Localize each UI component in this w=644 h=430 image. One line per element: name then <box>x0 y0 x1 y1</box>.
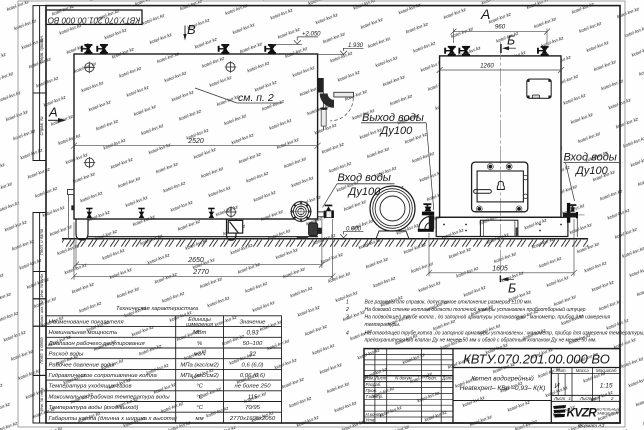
svg-text:Формат А3: Формат А3 <box>578 423 605 429</box>
svg-text:В: В <box>187 22 196 37</box>
svg-text:Значение: Значение <box>240 320 267 326</box>
svg-text:мм: мм <box>196 416 204 422</box>
svg-text:KVZR: KVZR <box>567 406 598 420</box>
svg-text:Масштаб: Масштаб <box>596 368 617 373</box>
svg-text:1.930: 1.930 <box>348 43 364 49</box>
svg-text:Инв. № подл.: Инв. № подл. <box>39 387 44 412</box>
svg-text:Подп. и дата: Подп. и дата <box>39 228 44 255</box>
svg-text:Подп.: Подп. <box>425 376 437 381</box>
svg-text:N докум.: N докум. <box>395 376 413 381</box>
svg-text:МВт: МВт <box>193 330 207 336</box>
svg-text:Габариты котла (длинна х ширин: Габариты котла (длинна х ширина х высота… <box>49 416 177 422</box>
svg-text:115: 115 <box>248 394 258 400</box>
svg-text:2770х1605х2050: 2770х1605х2050 <box>229 416 276 422</box>
svg-text:температуры.: температуры. <box>365 322 401 328</box>
svg-text:Вход воды: Вход воды <box>564 151 617 163</box>
svg-text:Пров.: Пров. <box>366 388 378 393</box>
svg-text:Гидравлическое сопротивление к: Гидравлическое сопротивление котла <box>49 373 158 379</box>
svg-text:Изм.: Изм. <box>365 376 374 381</box>
svg-text:0,93: 0,93 <box>246 329 259 336</box>
svg-text:КВТУ.070.201.00.000 ВО: КВТУ.070.201.00.000 ВО <box>463 351 610 366</box>
svg-text:Б: Б <box>507 34 515 48</box>
svg-text:Инв. № дубл.: Инв. № дубл. <box>39 273 44 298</box>
svg-text:Лит.: Лит. <box>555 368 566 373</box>
svg-text:0,06 (0,6): 0,06 (0,6) <box>240 373 265 379</box>
svg-text:3: 3 <box>346 315 349 321</box>
svg-text:МПа (кгс/см2): МПа (кгс/см2) <box>180 362 219 368</box>
svg-text:°С: °С <box>196 405 203 411</box>
svg-text:Листов: Листов <box>579 396 597 401</box>
svg-text:измерения: измерения <box>186 322 213 328</box>
svg-text:Номинальная мощность: Номинальная мощность <box>49 330 118 336</box>
svg-text:0,6 (6,0): 0,6 (6,0) <box>242 362 264 368</box>
svg-text:На подводящей трубе котла ,: На подводящей трубе котла , до запорной … <box>365 314 611 321</box>
svg-text:Расход воды: Расход воды <box>49 352 85 358</box>
svg-text:Температура воды (вход/выход): Температура воды (вход/выход) <box>49 405 139 411</box>
svg-text:70/95: 70/95 <box>245 405 260 411</box>
svg-text:Справ. №: Справ. № <box>39 116 44 135</box>
svg-text:50–100: 50–100 <box>243 341 263 347</box>
svg-text:Выход воды: Выход воды <box>362 112 424 124</box>
svg-text:Ду100: Ду100 <box>379 125 414 137</box>
svg-text:А: А <box>48 105 58 120</box>
svg-text:предохранительный клапан Ду н: предохранительный клапан Ду не менее 50 … <box>365 337 597 344</box>
svg-text:Наименование показателя: Наименование показателя <box>49 319 125 325</box>
svg-text:+2.050: +2.050 <box>302 32 321 38</box>
svg-text:МПа (кгс/см2): МПа (кгс/см2) <box>180 373 219 379</box>
svg-text:Котел водогрейный: Котел водогрейный <box>471 375 534 383</box>
svg-text:см. п. 2: см. п. 2 <box>238 92 274 104</box>
svg-text:2520: 2520 <box>187 138 204 145</box>
svg-text:2770: 2770 <box>192 269 209 276</box>
svg-text:Н.контр.: Н.контр. <box>366 412 385 417</box>
svg-text:Т.контр.: Т.контр. <box>366 394 384 399</box>
svg-text:32: 32 <box>249 351 256 358</box>
svg-text:КВТУ.070.201.00.000 ВО: КВТУ.070.201.00.000 ВО <box>47 15 140 24</box>
svg-text:%: % <box>197 341 202 347</box>
svg-text:Дата: Дата <box>441 376 454 381</box>
svg-text:Рабочее давление воды: Рабочее давление воды <box>49 362 116 368</box>
svg-text:Ду100: Ду100 <box>574 165 609 177</box>
svg-text:Лист: Лист <box>374 376 387 381</box>
svg-text:м3/ч: м3/ч <box>194 352 206 358</box>
svg-text:0.000: 0.000 <box>346 227 362 233</box>
svg-text:1:15: 1:15 <box>600 383 613 390</box>
svg-text:2: 2 <box>345 307 349 313</box>
svg-text:На боковой стенке котла в обла: На боковой стенке котла в области топочн… <box>365 306 586 313</box>
svg-text:Б: Б <box>508 282 516 296</box>
svg-text:не более 250: не более 250 <box>235 384 272 390</box>
svg-text:4: 4 <box>346 330 349 336</box>
svg-text:Утв.: Утв. <box>366 418 376 423</box>
svg-text:1605: 1605 <box>492 265 508 272</box>
svg-text:Подп. и дата: Подп. и дата <box>39 337 44 364</box>
svg-text:Диапазон рабочего регулировани: Диапазон рабочего регулирования <box>48 341 146 347</box>
svg-text:°С: °С <box>196 384 203 390</box>
svg-text:На отводящей трубе котла ,до з: На отводящей трубе котла ,до запорной ар… <box>365 329 644 336</box>
svg-text:Техническая характеристика: Техническая характеристика <box>116 306 199 312</box>
svg-text:Ду100: Ду100 <box>347 186 382 198</box>
svg-text:Перв. примен.: Перв. примен. <box>39 35 44 63</box>
svg-text:Взам. инв. №: Взам. инв. № <box>39 299 44 324</box>
svg-text:Температура уходящих газов: Температура уходящих газов <box>49 384 132 390</box>
svg-text:Максимальная рабочая температу: Максимальная рабочая температура воды <box>49 394 171 400</box>
svg-text:Масса: Масса <box>576 368 590 373</box>
svg-text:960: 960 <box>495 23 506 30</box>
svg-text:1: 1 <box>346 300 349 306</box>
svg-text:Heatexpert– КВр –0,93– К(К): Heatexpert– КВр –0,93– К(К) <box>460 385 546 392</box>
svg-text:Все размеры для справок, допус: Все размеры для справок, допустимое откл… <box>365 300 533 306</box>
svg-text:Разраб.: Разраб. <box>366 382 382 387</box>
svg-text:А: А <box>480 6 490 22</box>
svg-text:Вход воды: Вход воды <box>338 172 391 184</box>
svg-text:1260: 1260 <box>480 62 494 69</box>
svg-text:Лист: Лист <box>553 396 566 401</box>
svg-text:2650: 2650 <box>187 257 204 264</box>
svg-text:°С: °С <box>196 394 203 400</box>
svg-text:ЗАВОД РЭП: ЗАВОД РЭП <box>597 412 618 416</box>
svg-text:2: 2 <box>610 396 614 401</box>
